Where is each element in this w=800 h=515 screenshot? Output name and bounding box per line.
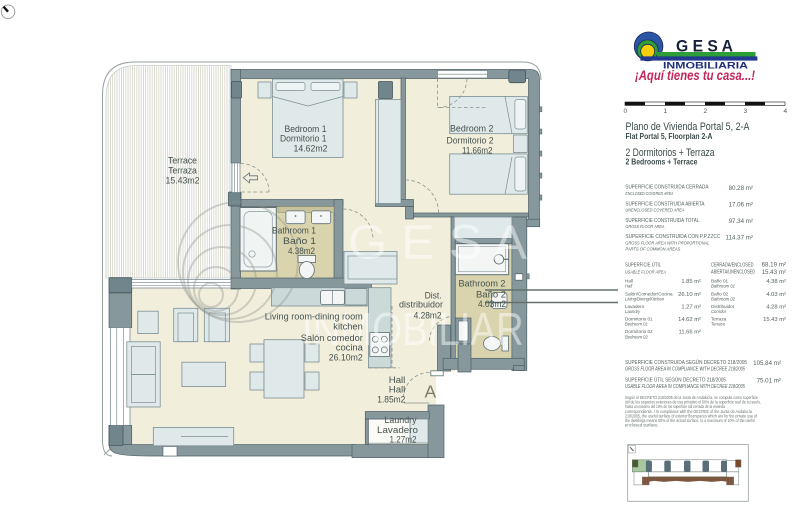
svg-text:17.06 m²: 17.06 m² [729, 202, 753, 209]
svg-text:11.66 m²: 11.66 m² [679, 330, 702, 336]
svg-text:114.37 m²: 114.37 m² [726, 235, 753, 242]
svg-text:1.27 m²: 1.27 m² [681, 305, 701, 311]
svg-text:USABLE FLOOR AREA IN COMPLIANC: USABLE FLOOR AREA IN COMPLIANCE WITH DEC… [625, 384, 745, 390]
svg-text:CERRADA/ENCLOSED: CERRADA/ENCLOSED [711, 263, 754, 269]
svg-text:SUPERFICIE CONSTRUIDA CON P.P.: SUPERFICIE CONSTRUIDA CON P.P.ZZCC [625, 234, 720, 240]
svg-text:15.43 m²: 15.43 m² [763, 317, 786, 323]
svg-text:Bedroom 01: Bedroom 01 [625, 322, 648, 327]
svg-text:4: 4 [784, 108, 788, 115]
svg-text:1.85 m²: 1.85 m² [681, 279, 701, 285]
svg-text:68.19 m²: 68.19 m² [762, 262, 786, 269]
svg-text:GROSS FLOOR AREA WITH PROPORTI: GROSS FLOOR AREA WITH PROPORTIONAL [625, 240, 709, 246]
svg-text:4.03m2: 4.03m2 [478, 299, 506, 310]
svg-text:enclosed surface.: enclosed surface. [625, 423, 659, 428]
svg-text:¡Aquí tienes tu casa...!: ¡Aquí tienes tu casa...! [635, 68, 755, 83]
svg-text:SUPERFICIE ÚTIL SEGÚN DECRETO: SUPERFICIE ÚTIL SEGÚN DECRETO 218/2005 [625, 377, 726, 384]
svg-text:SUPERFICIE CONSTRUIDA CERRADA: SUPERFICIE CONSTRUIDA CERRADA [625, 185, 708, 191]
svg-text:Terrace: Terrace [711, 322, 726, 327]
svg-text:Bathroom 01: Bathroom 01 [711, 284, 735, 289]
svg-text:GROSS FLOOR AREA IN COMPLIANCE: GROSS FLOOR AREA IN COMPLIANCE WITH DECR… [625, 367, 745, 373]
svg-text:Living/Dining/Kitchen: Living/Dining/Kitchen [625, 296, 665, 301]
svg-text:distribuidor: distribuidor [399, 299, 444, 310]
svg-text:PARTS OF COMMON AREAS: PARTS OF COMMON AREAS [625, 246, 681, 252]
svg-text:11.66m2: 11.66m2 [462, 146, 493, 157]
svg-text:SUPERFICIE CONSTRUIDA TOTAL: SUPERFICIE CONSTRUIDA TOTAL [625, 218, 699, 224]
svg-text:kitchen: kitchen [333, 322, 363, 333]
svg-text:SUPERFICIE CONSTRUIDA SEGÚN DE: SUPERFICIE CONSTRUIDA SEGÚN DECRETO 218/… [625, 359, 747, 366]
svg-text:4.28m2: 4.28m2 [414, 310, 442, 321]
svg-text:Corridor: Corridor [711, 309, 727, 314]
svg-text:105.84 m²: 105.84 m² [753, 360, 781, 367]
svg-text:UNENCLOSED COVERED AREA: UNENCLOSED COVERED AREA [625, 208, 684, 214]
svg-text:ABIERTA/UNENCLOSED: ABIERTA/UNENCLOSED [711, 270, 755, 276]
svg-text:26.10m2: 26.10m2 [329, 353, 363, 364]
svg-text:G E S A: G E S A [348, 217, 527, 270]
svg-text:USABLE FLOOR AREA: USABLE FLOOR AREA [625, 270, 666, 276]
svg-text:0: 0 [624, 108, 628, 115]
svg-text:1: 1 [664, 108, 668, 115]
svg-text:GROSS FLOOR AREA: GROSS FLOOR AREA [625, 224, 664, 230]
svg-text:Flat Portal 5, Floorplan 2-A: Flat Portal 5, Floorplan 2-A [626, 132, 713, 141]
svg-text:Hall: Hall [625, 284, 633, 289]
svg-text:4.28 m²: 4.28 m² [766, 305, 786, 311]
svg-text:14.62 m²: 14.62 m² [678, 317, 701, 323]
svg-text:14.62m2: 14.62m2 [294, 143, 328, 154]
svg-text:1.85m2: 1.85m2 [377, 395, 405, 406]
svg-text:2 Bedrooms + Terrace: 2 Bedrooms + Terrace [626, 158, 699, 167]
svg-text:4.38 m²: 4.38 m² [766, 279, 786, 285]
svg-text:2: 2 [704, 108, 708, 115]
svg-text:3: 3 [744, 108, 748, 115]
svg-text:SUPERFICIE ÚTIL: SUPERFICIE ÚTIL [625, 262, 661, 269]
svg-text:97.34 m²: 97.34 m² [729, 218, 753, 225]
svg-text:Bedroom 02: Bedroom 02 [625, 334, 648, 339]
svg-text:15.43 m²: 15.43 m² [762, 269, 786, 276]
svg-text:26.10 m²: 26.10 m² [678, 292, 701, 298]
svg-text:15.43m2: 15.43m2 [166, 176, 200, 187]
svg-text:ENCLOSED COVERED AREA: ENCLOSED COVERED AREA [625, 191, 673, 197]
svg-text:A: A [425, 382, 437, 402]
svg-text:80.28 m²: 80.28 m² [729, 185, 753, 192]
svg-text:Laundry: Laundry [625, 309, 641, 314]
svg-text:4.38m2: 4.38m2 [288, 246, 315, 257]
svg-text:G E S A: G E S A [676, 37, 733, 56]
svg-text:4.03 m²: 4.03 m² [766, 292, 786, 298]
svg-text:SUPERFICIE CONSTRUIDA ABIERTA: SUPERFICIE CONSTRUIDA ABIERTA [625, 202, 704, 208]
svg-text:Bathroom 1: Bathroom 1 [272, 226, 316, 237]
svg-text:Bathroom 02: Bathroom 02 [711, 296, 736, 301]
svg-text:Bedroom 2: Bedroom 2 [450, 124, 494, 135]
svg-text:Bathroom 2: Bathroom 2 [459, 279, 506, 290]
svg-text:75.01 m²: 75.01 m² [757, 378, 781, 385]
svg-text:1.27m2: 1.27m2 [390, 435, 417, 446]
